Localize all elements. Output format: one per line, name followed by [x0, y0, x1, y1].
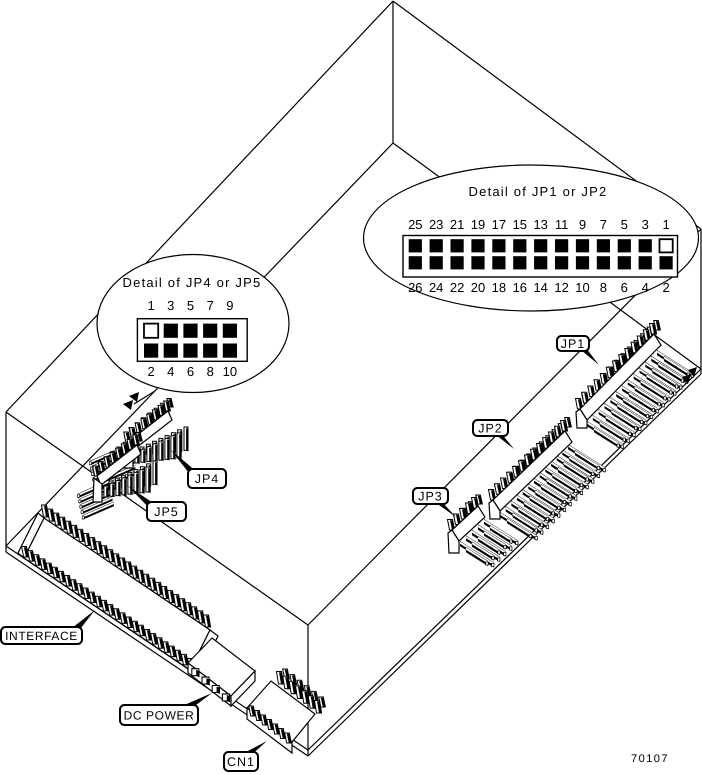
- svg-text:11: 11: [555, 217, 569, 232]
- svg-text:24: 24: [429, 280, 443, 295]
- svg-text:12: 12: [554, 280, 568, 295]
- svg-text:6: 6: [621, 280, 628, 295]
- svg-text:25: 25: [408, 217, 422, 232]
- svg-text:1: 1: [147, 298, 154, 313]
- svg-text:9: 9: [579, 217, 586, 232]
- svg-text:7: 7: [207, 298, 214, 313]
- svg-text:14: 14: [533, 280, 547, 295]
- svg-text:DC POWER: DC POWER: [124, 708, 195, 722]
- svg-text:5: 5: [621, 217, 628, 232]
- svg-text:10: 10: [223, 364, 237, 379]
- svg-text:1: 1: [662, 217, 669, 232]
- svg-text:JP4: JP4: [195, 472, 220, 486]
- svg-text:13: 13: [533, 217, 547, 232]
- svg-text:19: 19: [471, 217, 485, 232]
- svg-text:JP2: JP2: [478, 422, 503, 436]
- svg-text:10: 10: [575, 280, 589, 295]
- svg-text:70107: 70107: [631, 753, 669, 765]
- svg-text:JP1: JP1: [561, 337, 586, 351]
- svg-text:23: 23: [429, 217, 443, 232]
- svg-text:8: 8: [600, 280, 607, 295]
- svg-text:2: 2: [662, 280, 669, 295]
- svg-text:16: 16: [513, 280, 527, 295]
- svg-text:22: 22: [450, 280, 464, 295]
- svg-text:5: 5: [187, 298, 194, 313]
- svg-text:3: 3: [642, 217, 649, 232]
- svg-text:7: 7: [600, 217, 607, 232]
- svg-text:CN1: CN1: [227, 755, 255, 769]
- svg-text:Detail of JP4 or JP5: Detail of JP4 or JP5: [123, 275, 262, 290]
- svg-text:JP5: JP5: [154, 505, 179, 519]
- svg-text:4: 4: [167, 364, 174, 379]
- svg-text:JP3: JP3: [418, 490, 443, 504]
- svg-text:Detail of JP1 or JP2: Detail of JP1 or JP2: [469, 184, 608, 199]
- svg-text:18: 18: [492, 280, 506, 295]
- svg-text:6: 6: [187, 364, 194, 379]
- svg-text:21: 21: [450, 217, 464, 232]
- svg-text:2: 2: [147, 364, 154, 379]
- svg-text:26: 26: [408, 280, 422, 295]
- svg-text:4: 4: [642, 280, 649, 295]
- svg-text:15: 15: [513, 217, 527, 232]
- svg-text:20: 20: [471, 280, 485, 295]
- svg-text:8: 8: [207, 364, 214, 379]
- svg-text:INTERFACE: INTERFACE: [5, 629, 78, 643]
- svg-text:9: 9: [226, 298, 233, 313]
- svg-text:3: 3: [167, 298, 174, 313]
- svg-text:17: 17: [492, 217, 506, 232]
